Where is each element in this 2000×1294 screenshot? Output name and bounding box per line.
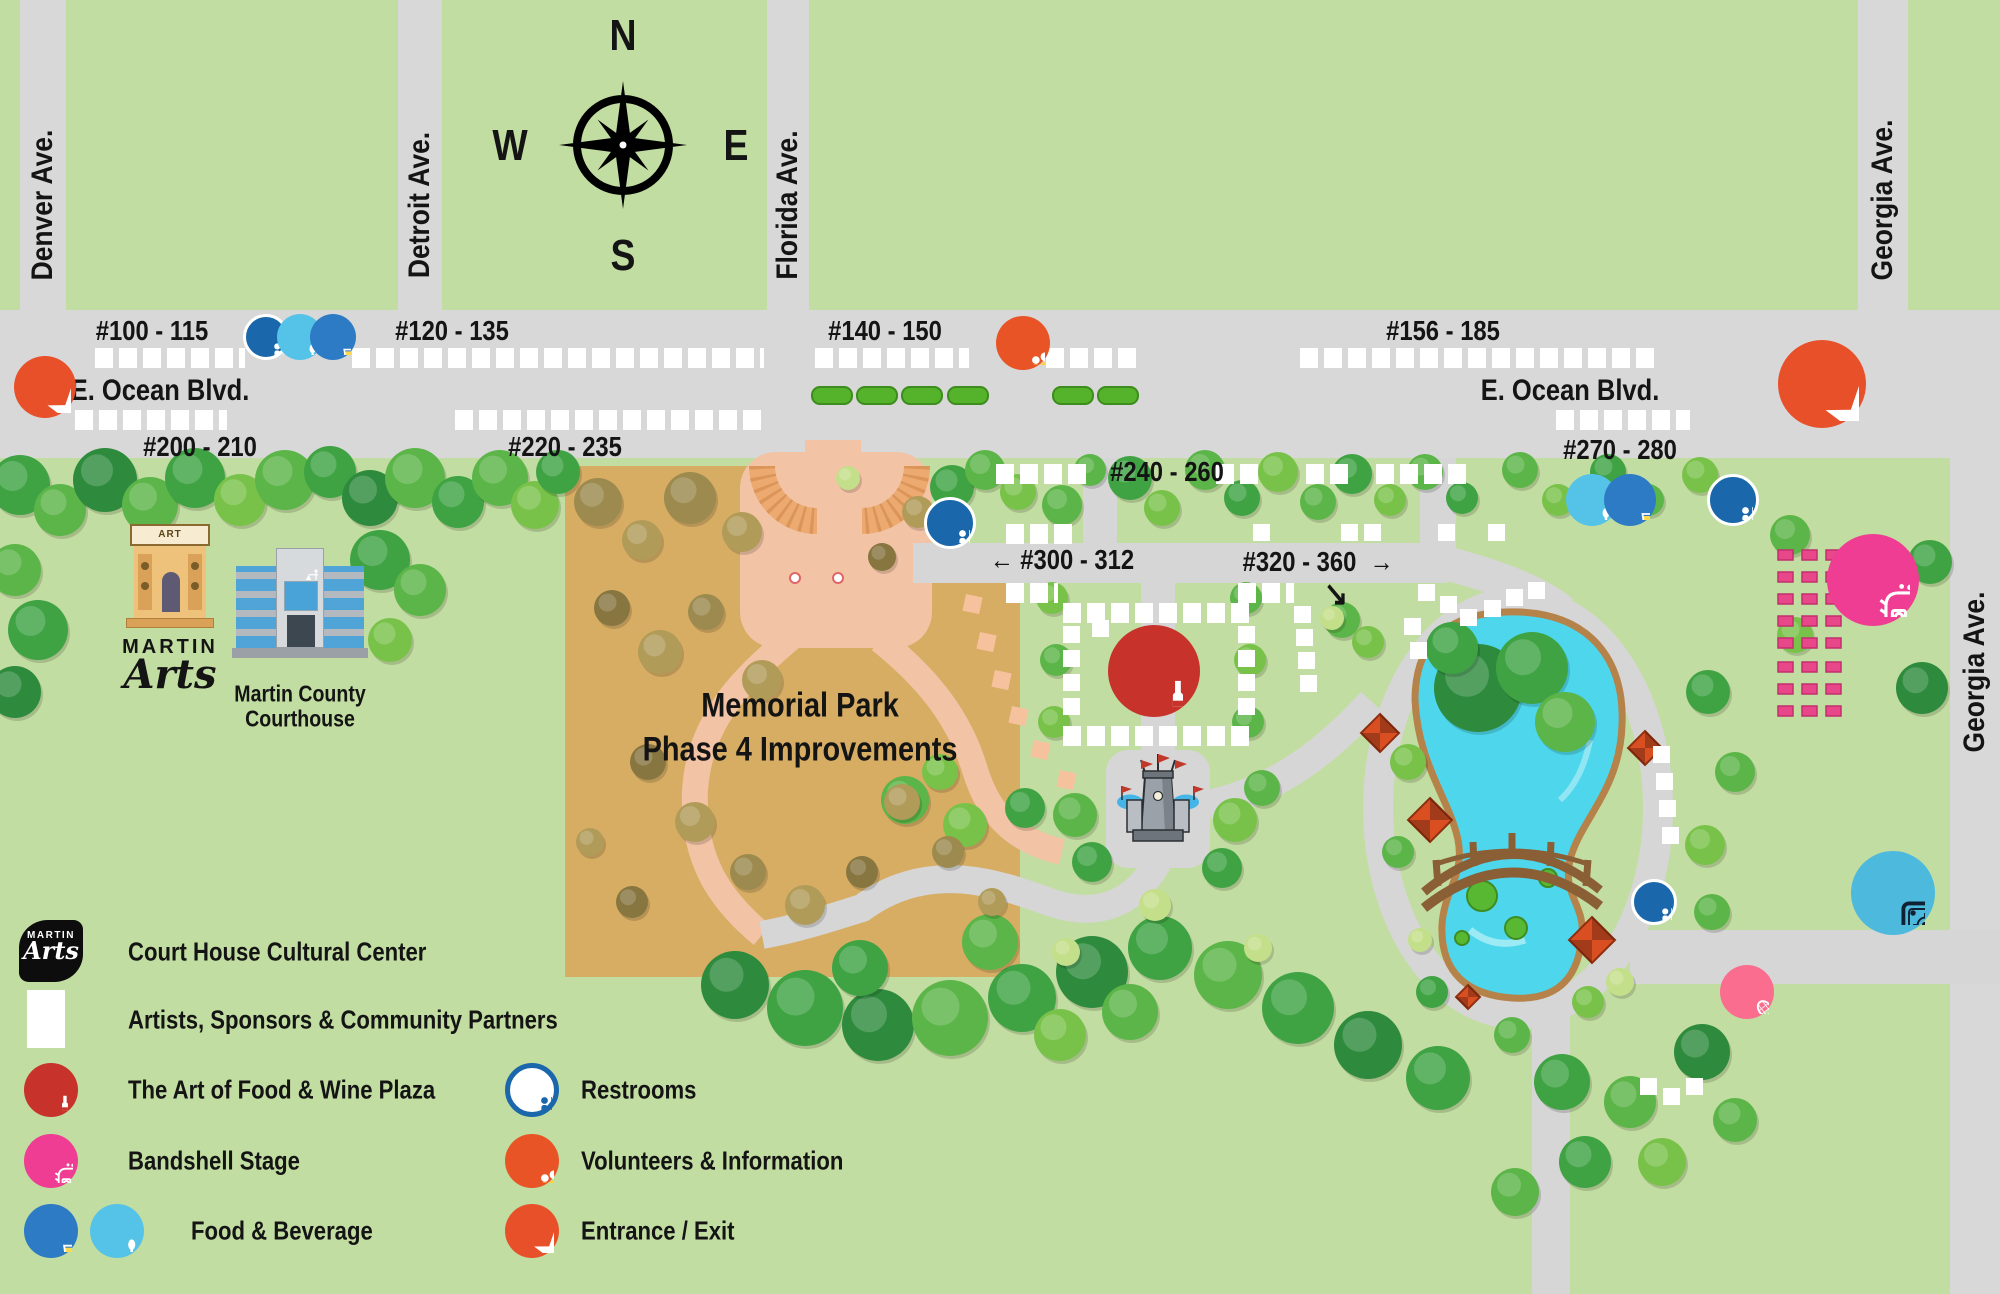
booth-square [1438,524,1455,541]
volunteers-icon [996,316,1050,370]
booth-square [1440,596,1457,613]
bandshell-stage-icon [1827,534,1919,626]
booth-row [1376,464,1470,484]
booth-square [1662,827,1679,844]
booth-square-memorial [1030,740,1050,760]
chair [1802,684,1817,694]
bandshell-legend-icon [24,1134,78,1188]
splash-pad-icon [1851,851,1935,935]
booth-label-320: #320 - 360 → [1243,546,1394,578]
chair [1802,662,1817,672]
booth-label-140: #140 - 150 [828,315,942,347]
chair [1778,550,1793,560]
chair [1826,616,1841,626]
entrance-legend-icon [505,1204,559,1258]
restrooms-icon [924,497,976,549]
booth-square [1298,652,1315,669]
chair [1778,662,1793,672]
booth-row [1300,348,1656,368]
compass-west: W [492,121,527,171]
hedges [812,387,1138,404]
beverage-icon [1604,474,1656,526]
booth-square [1063,674,1080,691]
compass-south: S [611,231,636,281]
booth-square [1659,800,1676,817]
courthouse-building [236,548,364,658]
legend-label-restrooms: Restrooms [581,1075,696,1106]
courthouse-label-line1: Martin County [234,681,365,708]
booth-square-memorial [1056,770,1076,790]
legend-label-cultural-center: Court House Cultural Center [128,937,426,968]
memorial-park-title-line2: Phase 4 Improvements [643,731,958,770]
art-gallery-sign: ART GALLERY [130,524,210,546]
tennis-icon [1720,965,1774,1019]
wine-plaza-legend-icon [24,1063,78,1117]
booth-square [1364,524,1381,541]
booth-label-300: ← #300 - 312 [990,544,1134,576]
booth-square [1640,1078,1657,1095]
hedge [1098,387,1138,404]
booth-square [1238,674,1255,691]
booth-square [1656,773,1673,790]
booth-square-memorial [976,632,996,652]
arrow-diagonal-icon: ↘ [1324,574,1348,614]
booth-row [1556,410,1690,430]
courthouse-label-line2: Courthouse [245,706,355,733]
chair [1802,594,1817,604]
chair [1778,594,1793,604]
booth-square [1686,1078,1703,1095]
booth-square [1460,609,1477,626]
booth-row [1306,464,1354,484]
street-label-georgia-top: Georgia Ave. [1866,120,1900,281]
booth-square [1238,698,1255,715]
hedge [948,387,988,404]
beverage-icon [310,314,356,360]
booth-row [1238,583,1294,603]
booth-square-memorial [991,670,1011,690]
booth-label-270: #270 - 280 [1563,434,1677,466]
chair [1778,684,1793,694]
compass-north: N [609,11,636,61]
chair [1802,638,1817,648]
compass-east: E [724,121,749,171]
hedge [812,387,852,404]
booth-square [1404,618,1421,635]
white-booth-swatch [27,990,65,1048]
booth-square [1528,582,1545,599]
booth-row [455,410,761,430]
booth-square [1063,698,1080,715]
booth-label-100: #100 - 115 [96,315,208,347]
chair [1778,706,1793,716]
booth-square [1296,629,1313,646]
street-label-georgia-side: Georgia Ave. [1958,592,1992,753]
booth-square [1063,626,1080,643]
booth-row [1006,524,1076,544]
booth-square [1663,1088,1680,1105]
street-label-florida: Florida Ave. [771,130,805,279]
martin-arts-logo-text: Martin Arts [110,636,230,691]
booth-label-220: #220 - 235 [508,431,622,463]
memorial-park-title-line1: Memorial Park [701,687,899,726]
chair [1826,638,1841,648]
street-label-denver: Denver Ave. [26,130,60,281]
volunteers-legend-icon [505,1134,559,1188]
festival-map: Denver Ave. Detroit Ave. Florida Ave. Ge… [0,0,2000,1294]
booth-row [95,348,245,368]
chair [1802,706,1817,716]
booth-square-memorial [1008,706,1028,726]
chair [1802,616,1817,626]
booth-square [1506,589,1523,606]
booth-row [352,348,764,368]
booth-row [1046,348,1142,368]
booth-square [1294,606,1311,623]
food-wine-plaza-icon [1108,625,1200,717]
legend-label-volunteers: Volunteers & Information [581,1146,843,1177]
booth-row [996,464,1090,484]
booth-square [1300,675,1317,692]
booth-square [1341,524,1358,541]
scales-icon [284,550,318,580]
entrance-exit-icon-east [1778,340,1866,428]
restrooms-icon [1631,879,1677,925]
martin-arts-logo-swatch: Martin Arts [19,920,83,982]
restrooms-icon [1707,474,1759,526]
booth-square [1253,524,1270,541]
legend-label-entrance: Entrance / Exit [581,1216,735,1247]
legend-label-wine-plaza: The Art of Food & Wine Plaza [128,1075,435,1106]
booth-label-200: #200 - 210 [143,431,257,463]
booth-square-memorial [962,594,982,614]
chair [1778,616,1793,626]
food-legend-icon [90,1204,144,1258]
booth-row [815,348,969,368]
legend-label-bandshell: Bandshell Stage [128,1146,300,1177]
booth-label-240: #240 - 260 [1110,456,1224,488]
booth-row [75,410,227,430]
art-gallery-building: ART GALLERY [126,524,214,630]
arrow-left-icon: ← [990,544,1014,575]
booth-square [1418,584,1435,601]
legend-label-food-beverage: Food & Beverage [191,1216,373,1247]
booth-square [1238,650,1255,667]
street-label-detroit: Detroit Ave. [403,132,437,278]
beverage-legend-icon [24,1204,78,1258]
arrow-right-icon: → [1370,546,1394,577]
entrance-exit-icon-west [14,356,76,418]
hedge [1053,387,1093,404]
booth-square [1410,642,1427,659]
chair [1802,572,1817,582]
booth-square [1488,524,1505,541]
street-label-ocean-right: E. Ocean Blvd. [1481,374,1660,408]
booth-row [1063,603,1255,623]
chair [1826,706,1841,716]
legend-label-artists: Artists, Sponsors & Community Partners [128,1005,558,1036]
chair [1778,638,1793,648]
booth-square [1484,600,1501,617]
street-label-ocean-left: E. Ocean Blvd. [71,374,250,408]
booth-square [1653,746,1670,763]
booth-square [1238,626,1255,643]
chair [1802,550,1817,560]
amphitheater-plaza [740,440,932,648]
booth-label-120: #120 - 135 [395,315,509,347]
booth-square [1063,650,1080,667]
booth-row [1006,583,1058,603]
hedge [902,387,942,404]
chair [1778,572,1793,582]
chair [1826,684,1841,694]
booth-label-156: #156 - 185 [1386,315,1500,347]
chair [1826,662,1841,672]
hedge [857,387,897,404]
restrooms-legend-icon [505,1063,559,1117]
compass-rose-icon [559,81,687,209]
booth-row [1063,726,1255,746]
